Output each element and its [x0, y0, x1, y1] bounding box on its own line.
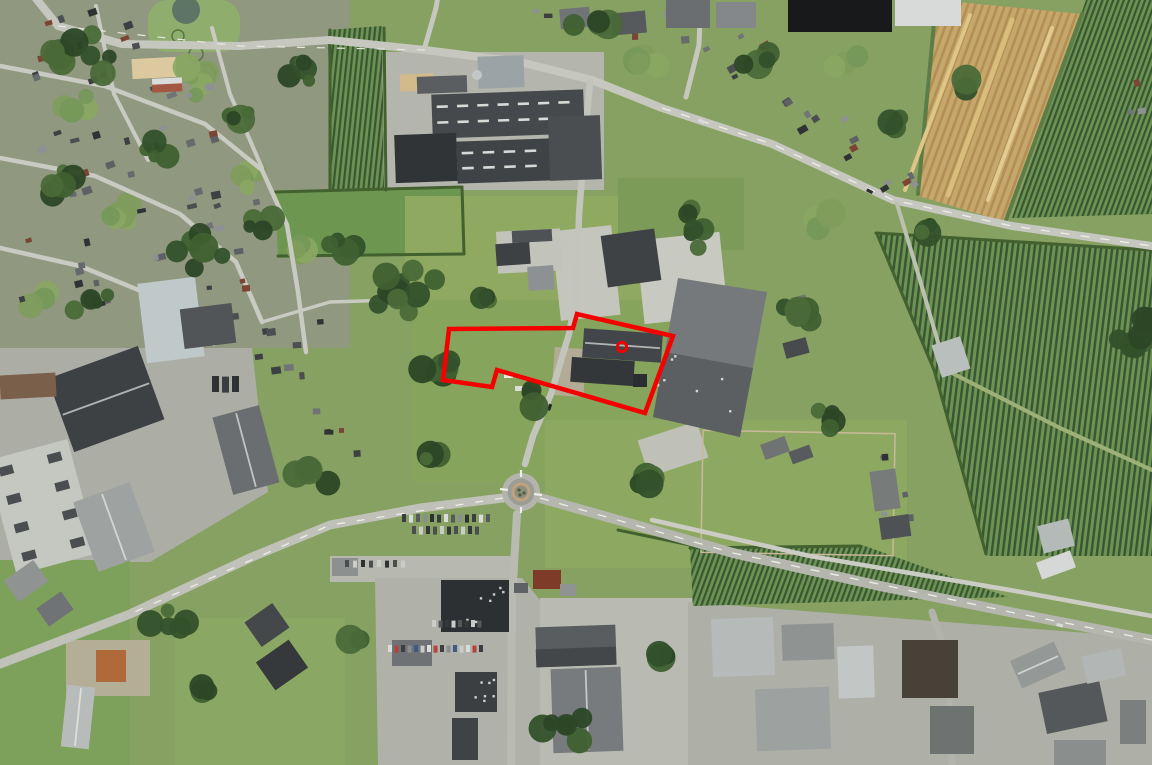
building — [533, 570, 561, 589]
tree — [587, 10, 610, 33]
garden-patch — [816, 199, 846, 229]
parked-car — [478, 621, 482, 628]
parked-car — [421, 646, 425, 653]
building — [1054, 740, 1106, 765]
building — [392, 640, 432, 666]
roof-skylight — [437, 121, 448, 124]
tree — [759, 51, 776, 68]
building — [755, 687, 831, 752]
building — [1120, 700, 1146, 744]
roof-skylight — [499, 587, 501, 589]
parked-car — [447, 646, 451, 653]
roof-skylight — [483, 166, 495, 169]
parked-car — [473, 646, 477, 653]
tree — [296, 55, 312, 71]
parked-car — [458, 514, 462, 522]
roof-skylight — [729, 410, 731, 412]
building — [452, 718, 478, 760]
building — [895, 0, 961, 26]
parked-car — [444, 514, 448, 522]
building — [514, 583, 528, 593]
tree — [40, 40, 65, 65]
garden-patch — [59, 98, 84, 123]
house — [339, 428, 344, 433]
tree — [684, 220, 704, 240]
building — [633, 374, 647, 387]
parked-car — [416, 514, 420, 522]
parked-car — [453, 645, 457, 652]
tree — [80, 289, 101, 310]
roof-skylight — [498, 119, 509, 122]
road-marking — [500, 489, 508, 490]
building — [536, 647, 617, 668]
tree — [951, 65, 981, 95]
garden-patch — [173, 53, 201, 81]
roof-skylight — [497, 103, 508, 106]
parked-car — [439, 621, 443, 628]
roof-skylight — [558, 101, 569, 104]
tree — [148, 150, 160, 162]
roof-skylight — [525, 149, 537, 152]
parked-car — [472, 514, 476, 522]
roof-skylight — [480, 681, 482, 683]
tree — [470, 287, 492, 309]
building — [902, 640, 958, 698]
roof-skylight — [663, 379, 665, 381]
tree — [408, 355, 436, 383]
garden-patch — [846, 45, 868, 67]
parked-car — [447, 527, 451, 535]
silo — [472, 70, 482, 80]
tree — [1109, 329, 1129, 349]
building — [456, 138, 551, 183]
tree — [646, 641, 672, 667]
house — [533, 9, 540, 14]
tree — [402, 260, 424, 282]
parked-car — [427, 645, 431, 652]
parked-car — [212, 376, 219, 392]
parked-car — [434, 646, 438, 653]
roof-skylight — [696, 390, 698, 392]
tree — [404, 281, 430, 307]
parked-car — [454, 526, 458, 534]
building — [512, 229, 553, 243]
house — [544, 14, 553, 18]
aerial-map — [0, 0, 1152, 765]
building — [570, 357, 635, 386]
roundabout-shrub — [522, 491, 525, 494]
roundabout-shrub — [517, 488, 520, 491]
tree — [387, 289, 408, 310]
tree — [824, 405, 839, 420]
roof-skylight — [493, 679, 495, 681]
building — [879, 514, 912, 540]
tree — [438, 350, 460, 372]
parked-car — [401, 561, 405, 568]
tree — [821, 419, 839, 437]
building — [417, 75, 468, 94]
building — [601, 228, 662, 287]
parked-car — [361, 560, 365, 567]
house — [153, 254, 159, 261]
road-marking — [534, 494, 542, 495]
house — [882, 454, 889, 461]
house — [353, 450, 360, 457]
tree — [303, 75, 315, 87]
tree — [877, 109, 903, 135]
house — [284, 364, 294, 371]
tree — [786, 303, 810, 327]
roof-skylight — [462, 152, 474, 155]
building — [180, 303, 236, 349]
roof-skylight — [502, 591, 504, 593]
building — [869, 468, 900, 511]
parked-car — [465, 621, 469, 628]
tree — [420, 452, 433, 465]
tree — [101, 288, 114, 301]
roof-skylight — [671, 358, 673, 360]
tree — [914, 225, 929, 240]
parked-car — [408, 646, 412, 653]
parked-car — [471, 620, 475, 627]
building — [0, 373, 57, 400]
parked-car — [388, 645, 392, 652]
house — [266, 328, 276, 336]
roof-skylight — [721, 378, 723, 380]
tree — [189, 233, 219, 263]
building — [455, 672, 497, 712]
building — [560, 584, 576, 596]
hedge-line — [462, 187, 464, 254]
roof-skylight — [480, 597, 482, 599]
tree — [198, 681, 217, 700]
parked-car — [465, 515, 469, 523]
parked-car — [451, 515, 455, 523]
roof-skylight — [474, 696, 476, 698]
garden-patch — [101, 207, 120, 226]
parked-car — [395, 646, 399, 653]
building — [548, 115, 602, 181]
tree — [243, 220, 256, 233]
roof-skylight — [538, 102, 549, 105]
building — [477, 55, 524, 89]
house — [271, 366, 281, 374]
parked-car — [433, 527, 437, 535]
parked-car — [222, 377, 229, 393]
tree — [226, 111, 240, 125]
parked-car — [423, 515, 427, 523]
tree — [734, 55, 753, 74]
parked-car — [479, 515, 483, 523]
tree — [543, 714, 560, 731]
roundabout-shrub — [518, 493, 521, 496]
parked-car — [460, 646, 464, 653]
parked-car — [466, 645, 470, 652]
tree — [161, 604, 175, 618]
roof-skylight — [478, 120, 489, 123]
building — [781, 623, 834, 661]
roof-skylight — [674, 355, 676, 357]
roof-skylight — [488, 682, 490, 684]
house — [207, 285, 213, 290]
house — [317, 319, 324, 325]
building — [96, 650, 126, 682]
parked-car — [385, 561, 389, 568]
parked-car — [445, 620, 449, 627]
parked-car — [409, 515, 413, 523]
parked-car — [369, 561, 373, 568]
tree — [41, 174, 64, 197]
roof-skylight — [484, 695, 486, 697]
roof-skylight — [437, 105, 448, 108]
parked-car — [345, 560, 349, 567]
building — [716, 2, 756, 28]
house — [242, 285, 251, 292]
parked-car — [412, 526, 416, 534]
building — [788, 0, 892, 32]
tree — [520, 392, 549, 421]
roof-skylight — [504, 165, 516, 168]
tree — [351, 633, 367, 649]
parked-car — [440, 526, 444, 534]
parked-car — [426, 526, 430, 534]
roundabout — [502, 473, 540, 511]
parked-car — [440, 645, 444, 652]
building — [495, 242, 530, 266]
garden-patch — [240, 179, 255, 194]
parked-car — [232, 376, 239, 392]
tree — [80, 46, 100, 66]
parked-car — [401, 645, 405, 652]
house — [681, 36, 690, 44]
parked-car — [430, 514, 434, 522]
hedge-line — [384, 28, 386, 190]
roof-skylight — [518, 118, 529, 121]
house — [324, 430, 333, 435]
parked-car — [458, 620, 462, 627]
parked-car — [402, 514, 406, 522]
roof-skylight — [493, 593, 495, 595]
parked-car — [475, 527, 479, 535]
house — [902, 491, 908, 497]
tree — [635, 470, 664, 499]
tree — [282, 460, 309, 487]
tree — [166, 240, 188, 262]
roof-skylight — [504, 150, 516, 153]
roof-skylight — [492, 695, 494, 697]
tree — [321, 236, 338, 253]
building — [837, 645, 875, 698]
garden-patch — [628, 53, 649, 74]
tree — [253, 220, 273, 240]
roof-skylight — [483, 700, 485, 702]
parked-car — [419, 527, 423, 535]
house — [293, 342, 302, 349]
tree — [137, 610, 164, 637]
parked-car — [432, 620, 436, 627]
roof-skylight — [518, 102, 529, 105]
parked-car — [461, 527, 465, 535]
roof-skylight — [462, 167, 474, 170]
tree — [65, 300, 84, 319]
parked-car — [353, 561, 357, 568]
roof-skylight — [457, 120, 468, 123]
roof-skylight — [475, 621, 477, 623]
map-viewport[interactable] — [0, 0, 1152, 765]
roof-skylight — [489, 600, 491, 602]
parked-car — [437, 515, 441, 523]
roundabout-ring — [515, 486, 528, 499]
parked-car — [414, 645, 418, 652]
roof-skylight — [457, 104, 468, 107]
house — [254, 353, 263, 360]
tree — [690, 239, 707, 256]
field-crop-rows — [328, 26, 384, 192]
garden-patch — [823, 56, 845, 78]
building — [394, 133, 458, 183]
roof-skylight — [477, 104, 488, 107]
roof-skylight — [483, 151, 495, 154]
building — [930, 706, 974, 754]
tree — [563, 14, 585, 36]
tree — [373, 263, 400, 290]
roof-skylight — [525, 164, 537, 167]
parked-car — [393, 560, 397, 567]
building — [711, 617, 775, 677]
building — [527, 265, 555, 291]
parked-car — [486, 514, 490, 522]
tree — [214, 248, 230, 264]
house — [313, 408, 321, 414]
parked-car — [452, 621, 456, 628]
parked-car — [468, 526, 472, 534]
house — [299, 372, 305, 380]
parked-car — [479, 645, 483, 652]
house — [881, 511, 887, 516]
building — [666, 0, 710, 28]
field-patch — [132, 57, 177, 79]
parked-car — [377, 560, 381, 567]
